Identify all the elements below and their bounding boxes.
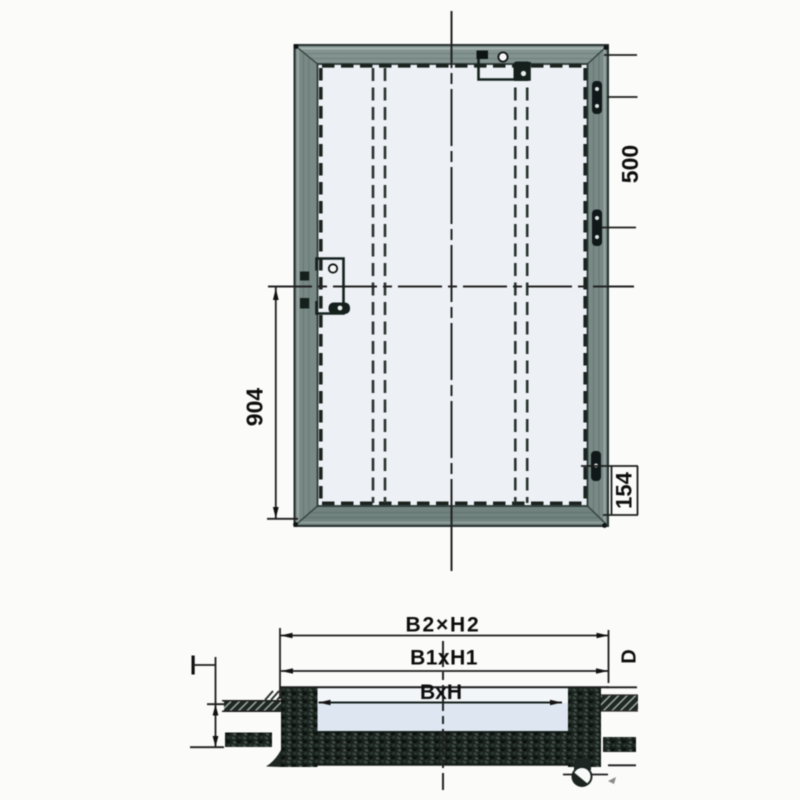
svg-text:BxH: BxH — [420, 681, 462, 704]
svg-text:B2×H2: B2×H2 — [406, 614, 481, 637]
svg-text:B1xH1: B1xH1 — [410, 647, 478, 670]
svg-text:D: D — [619, 649, 641, 663]
svg-text:154: 154 — [612, 471, 637, 508]
svg-text:904: 904 — [242, 388, 268, 427]
svg-text:500: 500 — [617, 145, 643, 183]
